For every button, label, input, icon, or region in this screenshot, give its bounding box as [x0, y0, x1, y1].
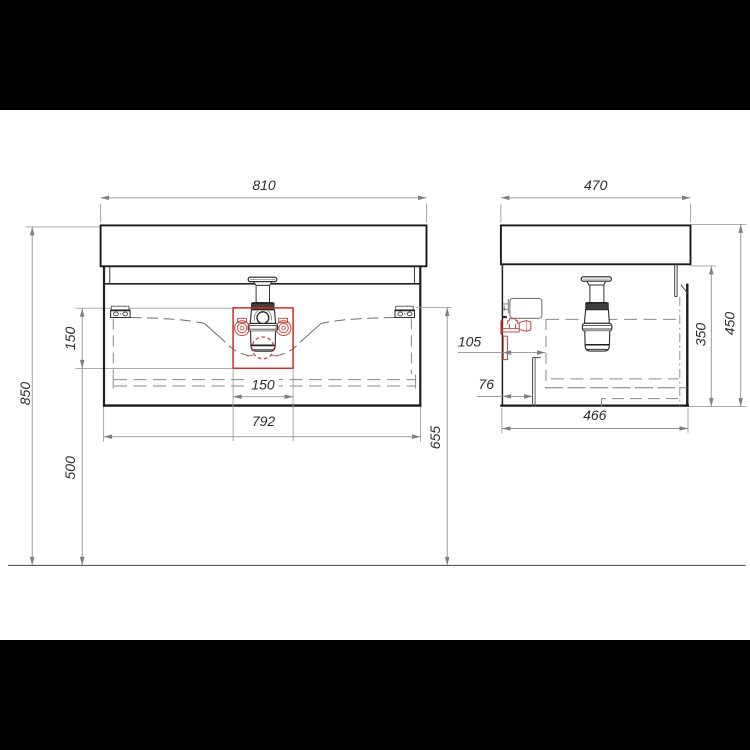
svg-text:810: 810 — [252, 177, 276, 193]
svg-text:850: 850 — [17, 382, 33, 406]
svg-text:350: 350 — [693, 323, 709, 347]
svg-text:450: 450 — [722, 312, 738, 336]
svg-text:105: 105 — [458, 334, 482, 350]
svg-text:150: 150 — [251, 376, 275, 392]
svg-text:792: 792 — [252, 413, 276, 429]
svg-text:470: 470 — [584, 177, 608, 193]
svg-text:466: 466 — [583, 407, 607, 423]
svg-text:655: 655 — [427, 426, 443, 450]
svg-text:76: 76 — [478, 376, 494, 392]
svg-text:150: 150 — [62, 327, 78, 351]
svg-text:500: 500 — [62, 456, 78, 480]
